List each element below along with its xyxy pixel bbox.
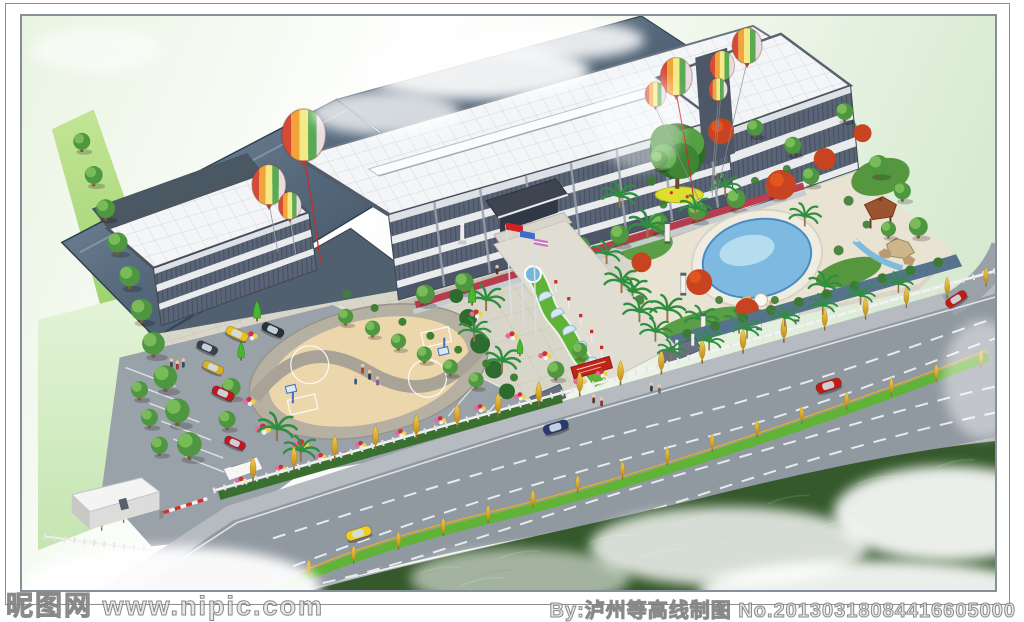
watermark-site: 昵图网 www.nipic.com (6, 584, 324, 622)
watermark-author: By:泸州等高线制图 No.20130318084416605000 (550, 594, 1016, 622)
fountain (525, 266, 541, 282)
rendering-frame (20, 14, 997, 592)
aerial-rendering (22, 16, 995, 590)
stock-photo-page: 昵图网 www.nipic.com By:泸州等高线制图 No.20130318… (0, 0, 1024, 622)
